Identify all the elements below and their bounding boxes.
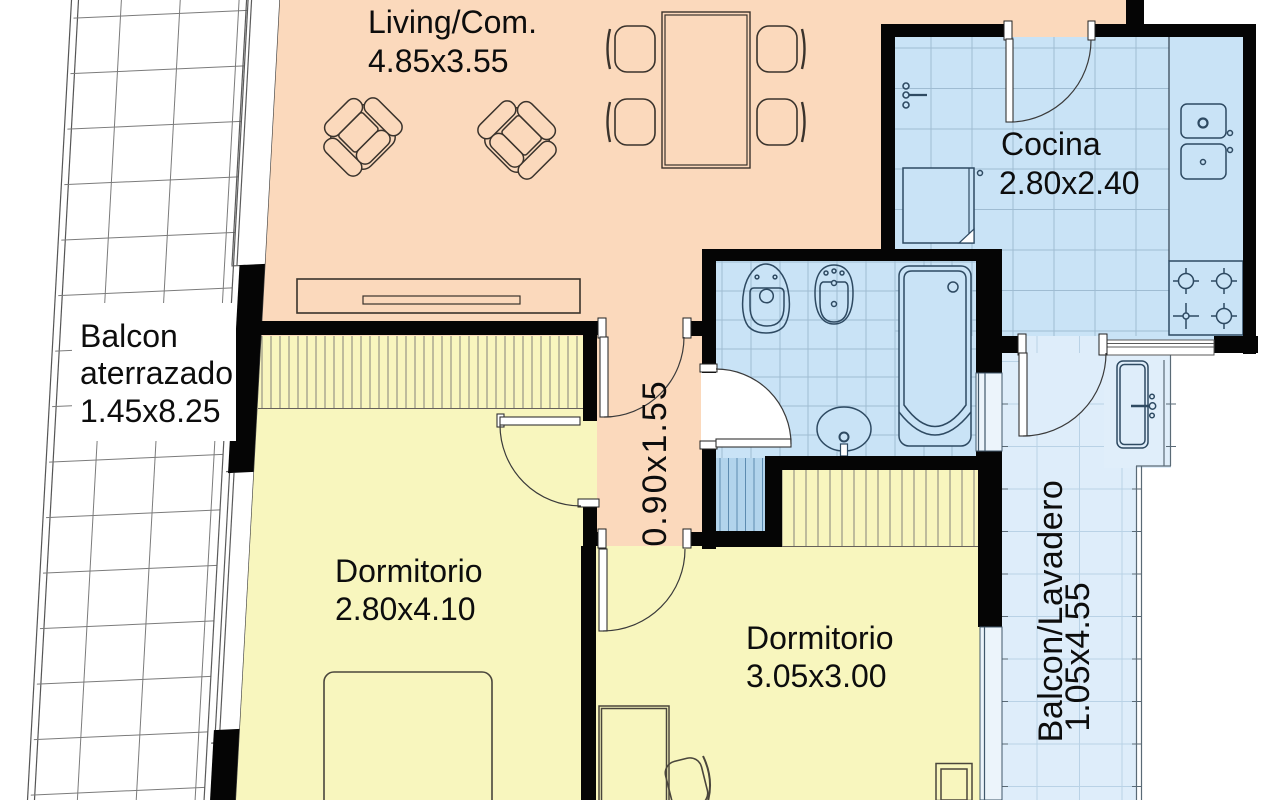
svg-text:Balcon: Balcon [80,318,178,354]
svg-text:2.80x2.40: 2.80x2.40 [999,165,1140,201]
svg-text:Cocina: Cocina [1001,126,1101,162]
svg-text:2.80x4.10: 2.80x4.10 [335,591,476,627]
svg-text:3.05x3.00: 3.05x3.00 [746,658,887,694]
svg-text:Dormitorio: Dormitorio [746,620,894,656]
svg-text:4.85x3.55: 4.85x3.55 [368,43,509,79]
svg-text:0.90x1.55: 0.90x1.55 [636,379,674,546]
svg-text:1.45x8.25: 1.45x8.25 [80,393,221,429]
svg-text:Dormitorio: Dormitorio [335,553,483,589]
svg-text:1.05x4.55: 1.05x4.55 [1059,582,1097,731]
svg-text:aterrazado: aterrazado [80,355,233,391]
svg-text:Living/Com.: Living/Com. [368,4,537,40]
